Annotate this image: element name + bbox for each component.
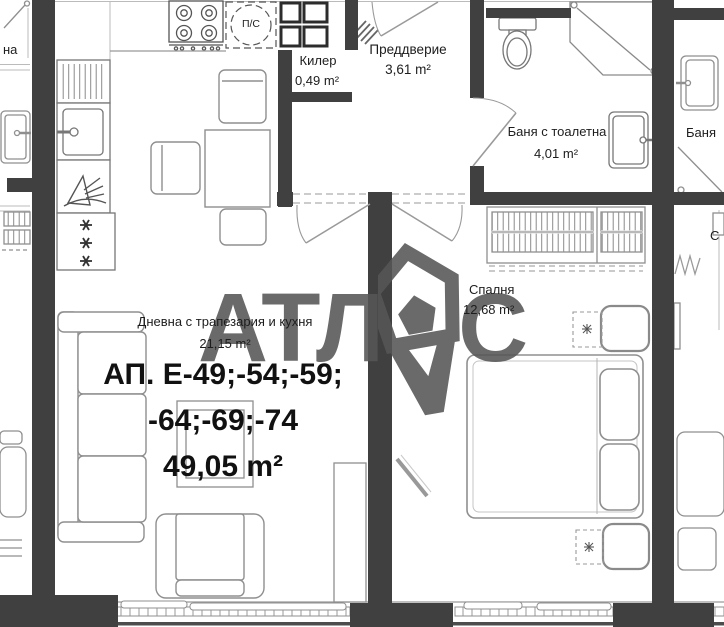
living-door-icon [297, 204, 370, 243]
floorplan-page: АТЛ С Килер 0,49 m² Преддверие 3,61 m² Б… [0, 0, 724, 627]
apartment-title-line3: 49,05 m² [58, 444, 388, 490]
bedroom-door-icon [392, 204, 462, 241]
washer-label: П/С [236, 18, 266, 30]
entrance-door-icon [372, 2, 438, 36]
room-area-vestibule: 3,61 m² [368, 62, 448, 77]
room-label-kiler: Килер [288, 53, 348, 68]
pillow-icon [600, 369, 639, 440]
kitchen-units [57, 60, 115, 270]
shower-icon [570, 2, 658, 75]
pillow-icon [600, 444, 639, 510]
living-window [117, 601, 350, 616]
dining-set [151, 70, 270, 245]
apartment-title-line1: АП. Е-49;-54;-59; [58, 352, 388, 398]
neighbor-window [713, 607, 724, 616]
bedroom-tv-icon [397, 455, 431, 496]
chair-icon [219, 70, 266, 123]
room-area-bedroom: 12,68 m² [463, 302, 514, 317]
room-label-bathroom: Баня с тоалетна [492, 124, 622, 139]
room-label-living: Дневна с трапезария и кухня [105, 314, 345, 329]
closet-shelves-icon [281, 3, 327, 46]
radiator-icon [675, 256, 700, 274]
neighbor-right-partial-label: С [710, 228, 719, 243]
room-area-kiler: 0,49 m² [282, 73, 352, 88]
neighbor-left-fragments [0, 1, 31, 556]
stove-icon [110, 1, 226, 51]
nightstand-icon [601, 306, 649, 351]
neighbor-bed-icon [677, 432, 724, 516]
toilet-icon [499, 18, 536, 69]
apartment-title-line2: -64;-69;-74 [58, 398, 388, 444]
room-area-bathroom: 4,01 m² [520, 146, 592, 161]
dining-table-icon [205, 130, 270, 207]
chair-icon [220, 209, 266, 245]
armchair-icon [156, 514, 264, 598]
radiator-icon [4, 212, 30, 226]
bath-sink-icon [609, 112, 654, 168]
room-label-bedroom: Спалня [469, 282, 514, 297]
neighbor-nightstand-icon [678, 528, 716, 570]
chair-icon [151, 142, 200, 194]
room-area-living: 21,15 m² [185, 336, 265, 351]
nightstand-icon [603, 524, 649, 569]
neighbor-right-bath-label: Баня [686, 125, 716, 140]
room-label-vestibule: Преддверие [348, 42, 468, 57]
dishrack-icon [62, 64, 105, 99]
wardrobe-icon [487, 207, 645, 271]
bed-icon [467, 355, 643, 518]
neighbor-left-label: на [3, 42, 17, 57]
radiator-icon [4, 230, 30, 244]
bedroom-window [455, 602, 613, 616]
apartment-title: АП. Е-49;-54;-59; -64;-69;-74 49,05 m² [58, 352, 388, 490]
